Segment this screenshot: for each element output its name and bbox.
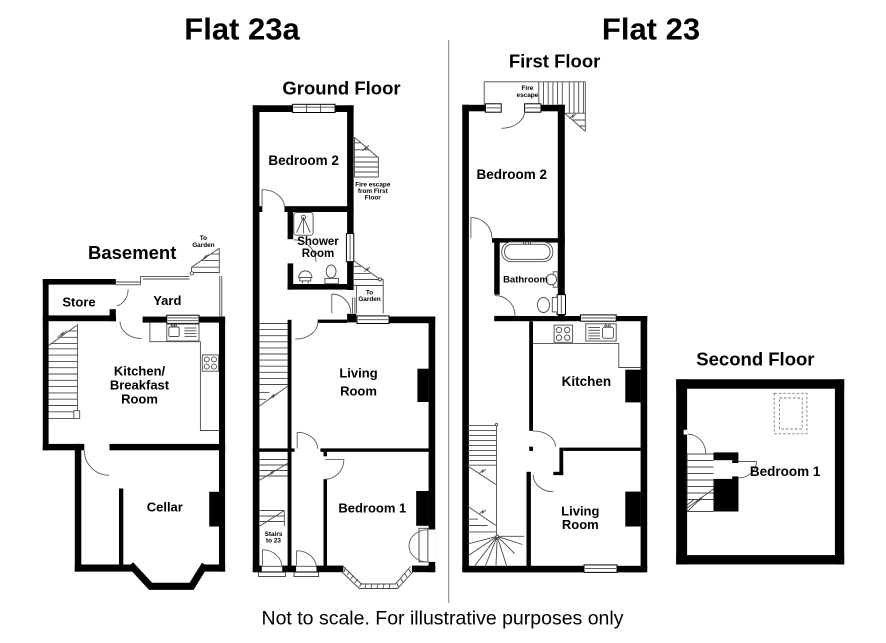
svg-text:Store: Store — [62, 295, 95, 310]
svg-text:Room: Room — [302, 248, 335, 260]
svg-text:Flat 23: Flat 23 — [602, 12, 700, 47]
svg-text:Flat 23a: Flat 23a — [184, 12, 300, 47]
svg-text:to 23: to 23 — [266, 538, 281, 545]
svg-text:Garden: Garden — [192, 242, 214, 249]
svg-text:Kitchen: Kitchen — [562, 374, 612, 389]
svg-text:Bedroom 1: Bedroom 1 — [338, 500, 406, 515]
svg-text:Not to scale. For illustrative: Not to scale. For illustrative purposes … — [262, 608, 624, 630]
svg-text:Bathroom: Bathroom — [503, 275, 548, 286]
svg-text:To: To — [200, 235, 207, 242]
svg-text:Breakfast: Breakfast — [110, 378, 170, 393]
svg-text:First Floor: First Floor — [509, 50, 600, 71]
svg-text:Second Floor: Second Floor — [696, 348, 814, 369]
svg-text:Garden: Garden — [358, 296, 380, 303]
svg-text:Room: Room — [340, 384, 377, 399]
svg-text:Yard: Yard — [153, 293, 181, 308]
svg-text:Ground Floor: Ground Floor — [282, 77, 400, 98]
svg-text:Room: Room — [562, 517, 599, 532]
svg-text:Floor: Floor — [365, 195, 381, 202]
svg-text:Cellar: Cellar — [147, 500, 183, 515]
svg-text:Living: Living — [339, 366, 377, 381]
svg-text:Bedroom 2: Bedroom 2 — [477, 167, 548, 182]
svg-text:Room: Room — [121, 391, 158, 406]
svg-text:Basement: Basement — [88, 242, 176, 263]
svg-text:escape: escape — [517, 92, 539, 99]
svg-text:Shower: Shower — [297, 236, 339, 248]
svg-text:Kitchen/: Kitchen/ — [114, 364, 166, 379]
svg-text:Bedroom 1: Bedroom 1 — [750, 464, 821, 479]
svg-text:Bedroom 2: Bedroom 2 — [268, 153, 339, 168]
